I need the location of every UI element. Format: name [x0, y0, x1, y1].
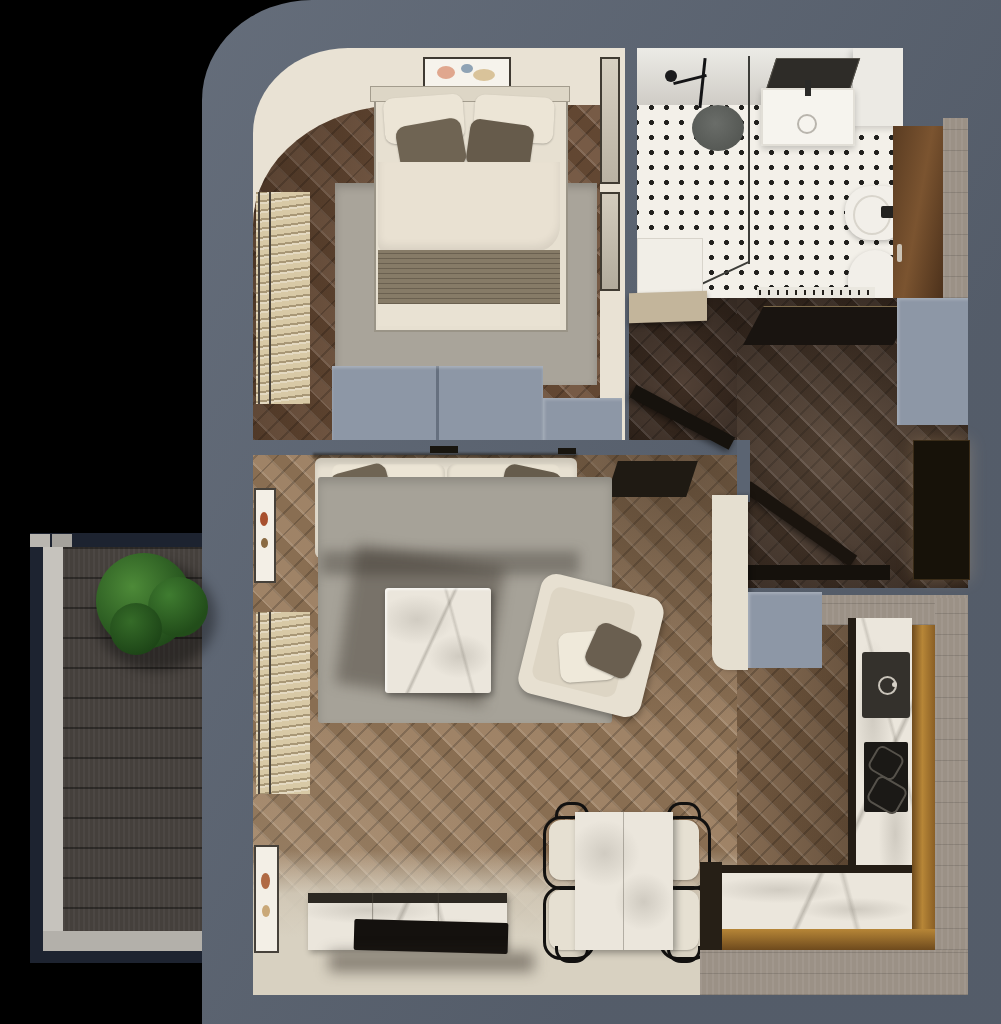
- inner-hall: [629, 298, 737, 440]
- counter-cabinet-band: [912, 625, 935, 950]
- art-blob-red: [260, 512, 268, 526]
- double-bed: [374, 86, 568, 332]
- art-blob-slate: [461, 64, 473, 73]
- coffee-table: [385, 588, 491, 693]
- bed-blanket: [378, 250, 560, 304]
- hall-side-cabinet: [629, 291, 707, 324]
- counter-end-cap: [700, 862, 722, 950]
- wall-stub: [737, 440, 750, 502]
- hall-console-table: [743, 306, 914, 345]
- bed-foot-sheet: [378, 304, 560, 326]
- partition-pillar: [712, 495, 748, 670]
- balcony-cap-left: [30, 534, 50, 547]
- blind-rail: [258, 612, 260, 794]
- living-wall-art-top: [254, 488, 276, 583]
- curtain-rail-mark: [430, 446, 458, 453]
- living-wall-art-bottom: [254, 845, 279, 953]
- dining-area: [541, 800, 701, 962]
- sink-faucet: [805, 80, 811, 96]
- balcony-side-ledge: [43, 547, 63, 951]
- blind-rail: [258, 192, 260, 404]
- balcony-cap-right: [52, 534, 72, 547]
- shower-mat: [692, 105, 744, 151]
- plant-foliage-lower: [110, 603, 162, 655]
- art-blob-pink: [437, 66, 455, 79]
- art-blob-rust: [261, 873, 270, 889]
- dining-table: [575, 812, 673, 950]
- blind-rail: [269, 192, 271, 404]
- art-blob-sand: [262, 905, 270, 917]
- kitchen-sink: [862, 652, 910, 718]
- partition-block: [748, 592, 822, 668]
- balcony: [30, 533, 202, 963]
- bedroom-window-blinds: [256, 192, 310, 404]
- counter-top-bottom-arm: [722, 873, 912, 929]
- hall-wardrobe: [913, 440, 970, 580]
- shower-tray: [637, 238, 703, 298]
- coat-rack-strip: [757, 287, 875, 298]
- hall-wall-block: [897, 298, 968, 425]
- blind-rail: [269, 612, 271, 794]
- vanity-sink: [761, 88, 855, 146]
- bed-duvet: [378, 162, 560, 252]
- bedroom-dresser-step: [543, 398, 622, 440]
- floor-plan-scene: [0, 0, 1001, 1024]
- tv-shadow: [329, 952, 534, 972]
- bathroom-side-planks: [943, 118, 968, 298]
- side-console: [606, 461, 698, 497]
- counter-cabinet-band-bottom: [722, 929, 935, 950]
- entry-hall: [737, 298, 968, 588]
- wardrobe-mirror-top: [600, 57, 620, 184]
- art-blob-tan: [473, 69, 495, 81]
- shower-glass-screen: [748, 56, 750, 264]
- living-window-blinds: [256, 612, 310, 794]
- entry-door-threshold: [743, 565, 890, 580]
- wardrobe-mirror-bottom: [600, 192, 620, 291]
- bathroom-wall-column: [853, 48, 903, 126]
- burner-ring: [865, 774, 909, 817]
- kitchen-planks-right: [935, 598, 968, 950]
- art-blob-brown: [261, 538, 268, 548]
- bathroom-wood-cabinet: [893, 126, 943, 298]
- cooktop: [864, 742, 908, 812]
- tv: [354, 919, 509, 954]
- counter-back-edge: [722, 865, 912, 873]
- coat-rack-hooks: [759, 290, 873, 295]
- balcony-bottom-ledge: [43, 931, 202, 951]
- bedroom-dresser: [332, 366, 543, 440]
- sink-faucet-dot: [892, 682, 897, 687]
- potted-plant: [88, 539, 214, 661]
- cabinet-handle: [897, 244, 902, 262]
- bathroom: [637, 48, 968, 298]
- living-room: [253, 455, 737, 995]
- kitchen-planks-bottom: [700, 950, 968, 995]
- shower-head-icon: [665, 70, 677, 82]
- sink-drain: [797, 114, 817, 134]
- bedroom: [253, 48, 625, 440]
- curtain-rail-mark: [558, 448, 576, 454]
- bathroom-mirror: [766, 58, 860, 90]
